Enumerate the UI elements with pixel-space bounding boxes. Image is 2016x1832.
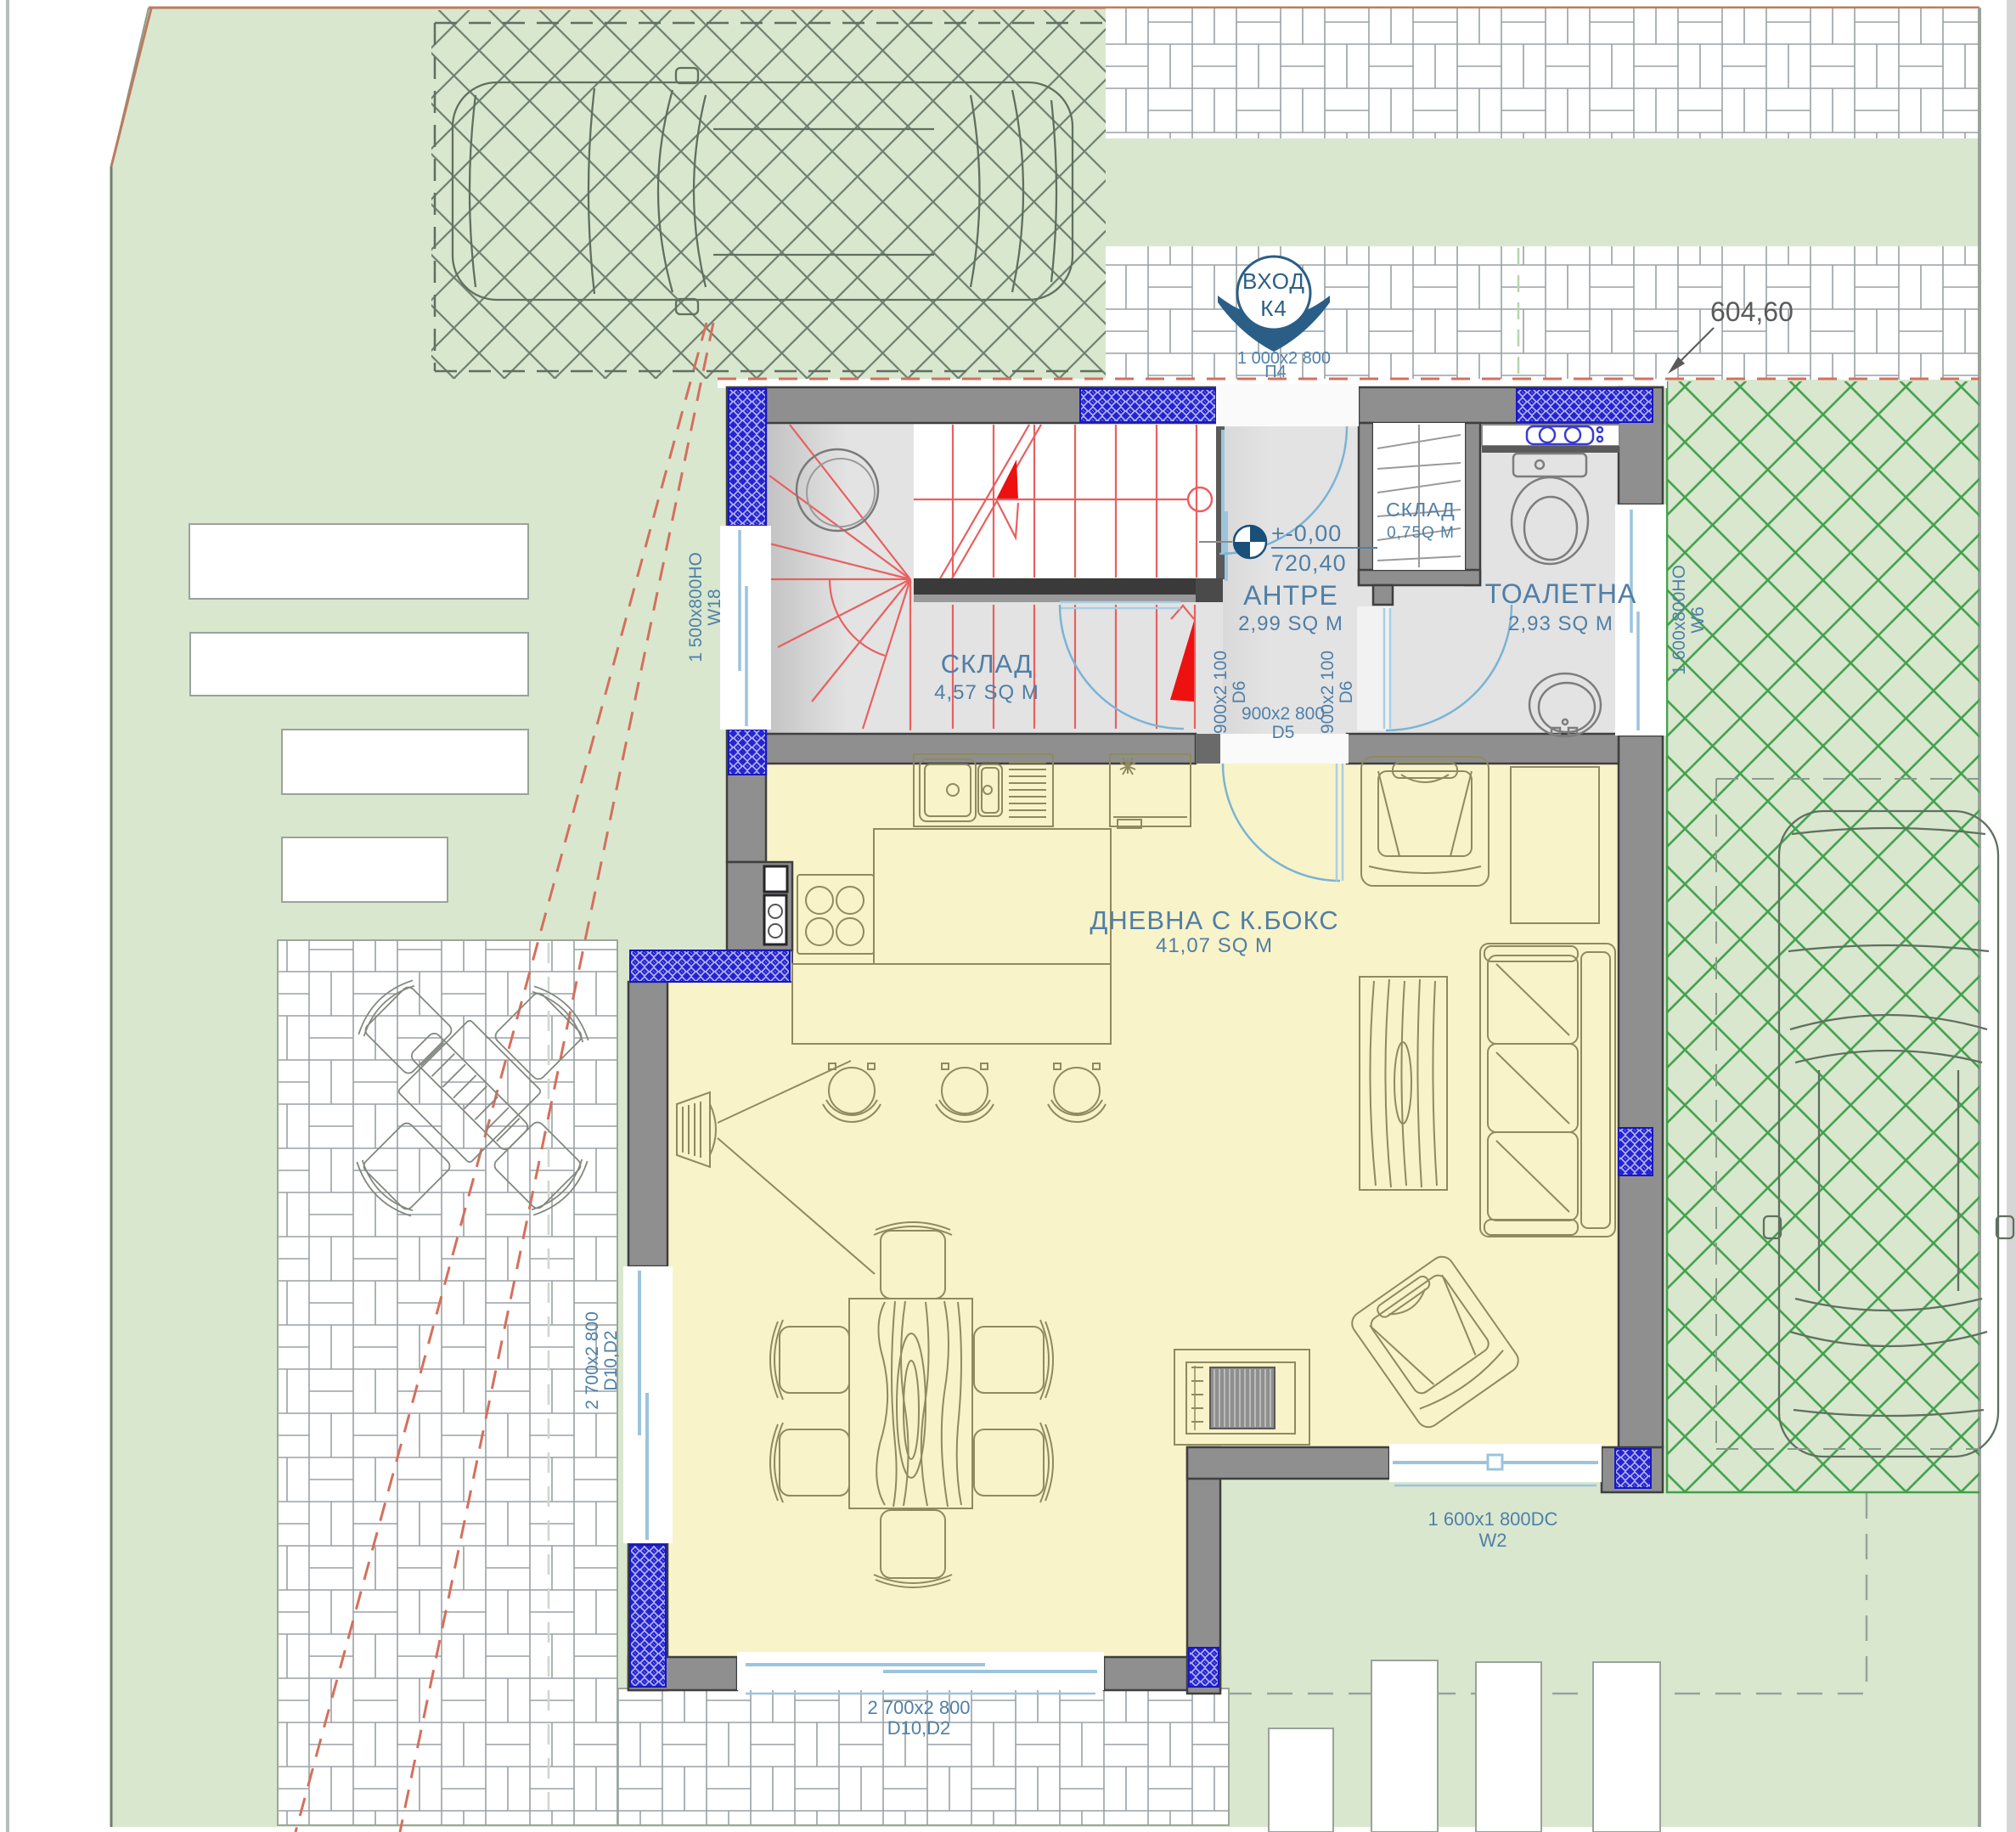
svg-text:0,75Q M: 0,75Q M [1387, 524, 1455, 542]
svg-text:W18: W18 [705, 589, 724, 625]
svg-text:604,60: 604,60 [1710, 296, 1794, 327]
svg-text:1 600x800НО: 1 600x800НО [1670, 565, 1689, 675]
svg-text:D6: D6 [1230, 681, 1249, 704]
svg-text:СКЛАД: СКЛАД [941, 649, 1033, 679]
svg-text:D6: D6 [1337, 681, 1356, 704]
svg-text:W6: W6 [1688, 606, 1708, 634]
svg-text:1 600x1 800DC: 1 600x1 800DC [1428, 1508, 1558, 1530]
svg-text:2,99 SQ M: 2,99 SQ M [1238, 612, 1343, 635]
svg-text:АНТРЕ: АНТРЕ [1243, 580, 1338, 611]
svg-text:П4: П4 [1264, 363, 1287, 381]
svg-text:1 500x800НО: 1 500x800НО [686, 552, 706, 662]
svg-text:D5: D5 [1272, 723, 1295, 742]
svg-text:720,40: 720,40 [1271, 550, 1347, 576]
svg-text:2 700x2 800: 2 700x2 800 [583, 1311, 602, 1410]
svg-text:W2: W2 [1479, 1530, 1507, 1551]
svg-text:СКЛАД: СКЛАД [1386, 499, 1456, 521]
svg-text:+-0,00: +-0,00 [1271, 521, 1342, 546]
svg-text:900x2 800: 900x2 800 [1242, 704, 1325, 724]
svg-text:41,07 SQ M: 41,07 SQ M [1156, 934, 1273, 957]
svg-text:D10,D2: D10,D2 [887, 1717, 951, 1739]
svg-text:К4: К4 [1260, 296, 1287, 321]
svg-text:2 700x2 800: 2 700x2 800 [867, 1697, 970, 1718]
svg-text:2,93 SQ M: 2,93 SQ M [1508, 612, 1613, 635]
svg-text:4,57 SQ M: 4,57 SQ M [934, 681, 1039, 704]
svg-text:ВХОД: ВХОД [1242, 268, 1305, 294]
svg-text:ТОАЛЕТНА: ТОАЛЕТНА [1485, 578, 1637, 609]
svg-text:ДНЕВНА С К.БОКС: ДНЕВНА С К.БОКС [1090, 905, 1338, 935]
svg-text:900x2 100: 900x2 100 [1211, 651, 1230, 734]
svg-text:D10,D2: D10,D2 [601, 1330, 621, 1390]
